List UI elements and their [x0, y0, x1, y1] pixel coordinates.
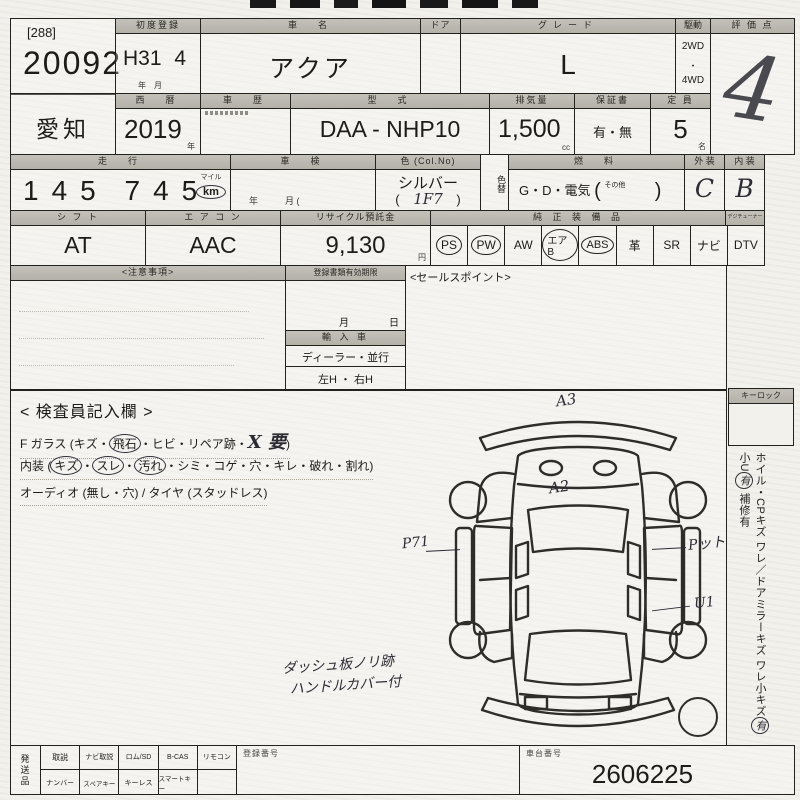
grade-box: グレード L — [460, 18, 676, 95]
hand-note: ダッシュ板ノリ跡 ハンドルカバー付 — [282, 651, 402, 701]
hand-x-required: X 要 — [248, 432, 286, 453]
drive-dot: ・ — [676, 59, 710, 72]
ship-rom-sd: ロム/SD — [119, 745, 158, 769]
aircon-value: AAC — [146, 232, 280, 259]
lot-number: 20092 — [23, 45, 122, 82]
year-label: 西 暦 — [116, 94, 200, 109]
tuner-label: デジチューナー — [725, 211, 764, 226]
notes-box: <注意事項> — [10, 265, 286, 390]
warranty-box: 保証書 有・無 — [574, 93, 651, 155]
car-name-box: 車 名 アクア — [200, 18, 421, 95]
aircon-label: エ ア コ ン — [146, 211, 280, 226]
sales-point-box: <セールスポイント> — [405, 265, 727, 390]
first-registration-label: 初度登録 — [116, 19, 200, 34]
grade-value: L — [461, 49, 675, 81]
color-code: 1F7 — [413, 190, 443, 208]
capacity-box: 定 員 5 名 — [650, 93, 711, 155]
ship-smart-key: スマートキー — [159, 770, 198, 795]
mark-hood: A2 — [548, 477, 571, 498]
capacity-unit: 名 — [698, 141, 706, 152]
history-box: 車 歴 — [200, 93, 291, 155]
shift-label: シ フ ト — [11, 211, 145, 226]
equipment-cell-aw: AW — [505, 225, 542, 265]
registration-label: 登録番号 — [243, 748, 279, 759]
fuel-box: 燃 料 G・D・電気 ( その他 ) — [508, 154, 685, 211]
inspector-stamp-circle — [678, 697, 718, 737]
equipment-cell-pw: PW — [468, 225, 505, 265]
first-registration-unit: 年 月 — [138, 80, 162, 91]
keylock-label: キーロック — [729, 389, 793, 404]
prefecture-box: 愛知 — [10, 93, 116, 155]
mileage-digits-a: 145 — [23, 175, 109, 206]
shaken-label: 車 検 — [231, 155, 375, 170]
oval-yogore: 汚れ — [134, 456, 166, 475]
drive-label: 駆動 — [676, 19, 710, 34]
equipment-cell-abs: ABS — [579, 225, 616, 265]
inspector-line3: オーディオ (無し・穴) / タイヤ (スタッドレス) — [20, 484, 267, 506]
history-fineprint — [205, 111, 249, 115]
oval-sure: スレ — [92, 456, 124, 475]
oval-tobiishi: 飛石 — [109, 434, 141, 453]
color-box: 色 (Col.No) シルバー ( 1F7 ) — [375, 154, 481, 211]
equipment-cell-dtv: DTV — [728, 225, 764, 265]
registration-box: 登録番号 — [237, 745, 520, 795]
first-registration-era: H31 — [123, 47, 162, 70]
equipment-cell-sr: SR — [654, 225, 691, 265]
import-options: ディーラー・並行 — [286, 349, 405, 365]
color-code-open: ( — [395, 192, 399, 207]
mileage-unit-mile: マイル — [197, 172, 225, 182]
car-name-value: アクア — [201, 49, 420, 85]
shift-value: AT — [11, 232, 145, 259]
chassis-number: 2606225 — [520, 759, 765, 790]
warranty-label: 保証書 — [575, 94, 650, 109]
ship-bcas: B-CAS — [159, 745, 198, 769]
recycle-box: リサイクル預託金 9,130 円 — [280, 210, 431, 266]
first-registration-box: 初度登録 H31 4 年 月 — [115, 18, 201, 95]
recycle-unit: 円 — [418, 252, 426, 263]
capacity-label: 定 員 — [651, 94, 710, 109]
side-note-part3: 小U — [738, 452, 750, 472]
sales-point-label: <セールスポイント> — [410, 269, 511, 285]
auction-sheet: [288] 20092 初度登録 H31 4 年 月 車 名 アクア ドア グレ… — [0, 0, 800, 800]
recycle-label: リサイクル預託金 — [281, 211, 430, 226]
equipment-cell-leather: 革 — [617, 225, 654, 265]
model-box: 型 式 DAA - NHP10 — [290, 93, 490, 155]
displacement-unit: cc — [562, 143, 570, 152]
ship-navi-manual: ナビ取説 — [80, 745, 119, 769]
door-box: ドア — [420, 18, 461, 95]
drive-box: 駆動 2WD ・ 4WD — [675, 18, 711, 95]
equipment-label: 純 正 装 備 品 — [431, 211, 726, 226]
mileage-unit-km: km — [196, 185, 226, 199]
shipping-label-cell: 発送品 — [10, 745, 41, 795]
mark-right-rear: U1 — [693, 594, 715, 612]
color-change-box: 色替 — [480, 154, 509, 211]
chassis-box: 車台番号 2606225 — [520, 745, 795, 795]
mark-left-side: P71 — [401, 534, 430, 553]
exterior-label: 外 装 — [685, 155, 724, 170]
color-code-close: ) — [456, 192, 460, 207]
ship-spare-key: スペアキー — [80, 770, 119, 795]
history-label: 車 歴 — [201, 94, 290, 109]
year-box: 西 暦 2019 年 — [115, 93, 201, 155]
color-label: 色 (Col.No) — [376, 155, 480, 170]
fuel-options: G・D・電気 — [519, 183, 591, 198]
mark-right-side: Pット — [687, 531, 726, 555]
fuel-other: その他 — [604, 182, 625, 189]
equipment-cell-airbag: エアB — [542, 225, 579, 265]
ship-empty-cell — [198, 770, 237, 795]
warranty-value: 有・無 — [575, 122, 650, 141]
equipment-cell-navi: ナビ — [691, 225, 728, 265]
validity-label: 登録書類有効期限 — [286, 266, 405, 281]
drive-4wd: 4WD — [676, 75, 710, 86]
year-unit: 年 — [187, 141, 195, 152]
equipment-cell-ps: PS — [431, 225, 468, 265]
mileage-box: 走 行 145 745 マイル km — [10, 154, 231, 211]
displacement-box: 排気量 1,500 cc — [489, 93, 575, 155]
door-label: ドア — [421, 19, 460, 34]
shipping-label: 発送品 — [19, 754, 32, 787]
interior-box: 内 装 B — [724, 154, 765, 211]
shaken-box: 車 検 年 月 ( — [230, 154, 376, 211]
mileage-label: 走 行 — [11, 155, 230, 170]
model-label: 型 式 — [291, 94, 489, 109]
inspector-title: < 検査員記入欄 > — [20, 398, 154, 422]
first-registration-month: 4 — [174, 47, 186, 70]
interior-grade: B — [725, 174, 764, 203]
color-change-label: 色替 — [481, 163, 508, 205]
import-label: 輸 入 車 — [286, 331, 405, 346]
side-note-oval2: 有 — [735, 472, 753, 490]
aircon-box: エ ア コ ン AAC — [145, 210, 281, 266]
exterior-box: 外 装 C — [684, 154, 725, 211]
handle-options: 左H ・ 右H — [286, 371, 405, 387]
ship-number-plate: ナンバー — [41, 770, 80, 795]
cropped-title-fragment — [250, 0, 580, 9]
fuel-label: 燃 料 — [509, 155, 684, 170]
side-note-part4: 補修有 — [738, 489, 750, 527]
lot-box: [288] 20092 — [10, 18, 116, 95]
lot-bracket: [288] — [27, 25, 56, 40]
side-note-part2: 小キズ — [754, 682, 766, 717]
prefecture-value: 愛知 — [11, 110, 115, 144]
equipment-box: 純 正 装 備 品 デジチューナー PS PW AW エアB ABS 革 SR … — [430, 210, 765, 266]
side-note-oval1: 有 — [751, 717, 769, 735]
side-note-strip: ホイル・CPキズ ワレ／ドアミラーキズ ワレ小キズ有 小U有 補修有 — [736, 452, 768, 744]
drive-2wd: 2WD — [676, 41, 710, 52]
mark-front: A3 — [555, 390, 578, 411]
shaken-sub: 年 月 ( — [249, 194, 300, 207]
chassis-label: 車台番号 — [526, 748, 562, 759]
ship-remote: リモコン — [198, 745, 237, 769]
score-box: 評 価 点 4 — [710, 18, 795, 155]
recycle-value: 9,130 — [281, 232, 430, 260]
year-value: 2019 — [124, 114, 182, 145]
exterior-grade: C — [685, 174, 724, 203]
ship-keyless: キーレス — [119, 770, 158, 795]
oval-kizu: キズ — [50, 456, 82, 475]
displacement-value: 1,500 — [498, 115, 561, 144]
notes-label: <注意事項> — [11, 266, 285, 281]
side-note-part1: ホイル・CPキズ ワレ／ドアミラーキズ ワレ — [754, 452, 766, 682]
grade-label: グレード — [461, 19, 675, 34]
validity-box: 登録書類有効期限 月 日 輸 入 車 ディーラー・並行 左H ・ 右H — [285, 265, 406, 390]
ship-manual: 取説 — [41, 745, 80, 769]
shift-box: シ フ ト AT — [10, 210, 146, 266]
inspector-line2: 内装 (キズ・スレ・汚れ・シミ・コゲ・穴・キレ・破れ・割れ) — [20, 456, 373, 480]
inspector-line1: F ガラス (キズ・飛石・ヒビ・リペア跡・X 要) — [20, 428, 290, 459]
car-name-label: 車 名 — [201, 19, 420, 34]
interior-label: 内 装 — [725, 155, 764, 170]
car-diagram — [428, 394, 728, 744]
validity-sub: 月 日 — [286, 314, 399, 329]
keylock-box: キーロック — [728, 388, 794, 446]
displacement-label: 排気量 — [490, 94, 574, 109]
model-value: DAA - NHP10 — [291, 116, 489, 143]
score-handwritten: 4 — [703, 31, 800, 146]
